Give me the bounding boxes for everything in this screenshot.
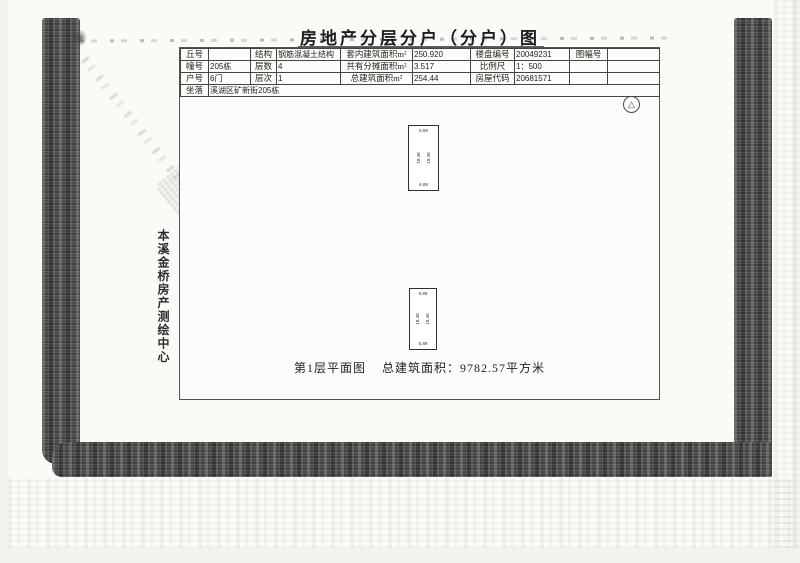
- property-info-table: 丘号 结构 钢筋混凝土结构 套内建筑面积m² 250.920 楼盘编号 2004…: [180, 48, 660, 97]
- field-value: [608, 73, 660, 85]
- field-label: 共有分摊面积m²: [341, 61, 413, 73]
- scan-artifact-strip-right: [734, 18, 772, 477]
- field-label: [570, 73, 608, 85]
- scan-texture-bottom: [8, 478, 792, 548]
- field-label: 图幅号: [570, 49, 608, 61]
- field-label: 总建筑面积m²: [341, 73, 413, 85]
- table-row: 坐落 溪湖区矿新街205栋: [181, 85, 660, 97]
- field-label: [570, 61, 608, 73]
- field-label: 幢号: [181, 61, 209, 73]
- dimension-label: 18.48: [426, 313, 431, 324]
- compass-logo-icon: △: [623, 96, 640, 113]
- plan-sheet: 丘号 结构 钢筋混凝土结构 套内建筑面积m² 250.920 楼盘编号 2004…: [179, 47, 660, 400]
- dimension-label: 6.89: [413, 183, 435, 188]
- dimension-labels-vertical: 18.48 18.48: [415, 311, 431, 326]
- field-value: [209, 49, 251, 61]
- field-label: 比例尺: [471, 61, 515, 73]
- field-label: 户号: [181, 73, 209, 85]
- table-row: 户号 6门 层次 1 总建筑面积m² 254.44 房屋代码 20681571: [181, 73, 660, 85]
- field-label: 丘号: [181, 49, 209, 61]
- field-value: 205栋: [209, 61, 251, 73]
- scanned-document: 房地产分层分户（分户）图 本溪金桥房产测绘中心 丘号 结构 钢筋混凝土结构 套内…: [0, 0, 800, 563]
- field-value: 钢筋混凝土结构: [277, 49, 341, 61]
- dimension-label: 18.48: [426, 152, 431, 163]
- ink-speck: [72, 28, 88, 48]
- floor-caption-name: 第1层平面图: [294, 361, 366, 375]
- scan-texture-right: [774, 0, 800, 548]
- field-value: 1：500: [515, 61, 570, 73]
- table-row: 丘号 结构 钢筋混凝土结构 套内建筑面积m² 250.920 楼盘编号 2004…: [181, 49, 660, 61]
- floor-caption-area: 总建筑面积：9782.57平方米: [382, 361, 545, 375]
- field-label: 层数: [251, 61, 277, 73]
- field-label: 结构: [251, 49, 277, 61]
- field-value: 1: [277, 73, 341, 85]
- scan-artifact-strip-left: [42, 18, 80, 464]
- floor-caption: 第1层平面图总建筑面积：9782.57平方米: [180, 359, 659, 376]
- field-value: 溪湖区矿新街205栋: [209, 85, 660, 97]
- field-label: 房屋代码: [471, 73, 515, 85]
- field-value: 20049231: [515, 49, 570, 61]
- field-value: 250.920: [413, 49, 471, 61]
- dimension-label: 6.89: [413, 292, 433, 297]
- dimension-label: 6.89: [413, 342, 433, 347]
- dimension-labels-vertical: 18.48 18.48: [416, 150, 432, 165]
- field-value: [608, 61, 660, 73]
- unit-outline-upper: 6.89 18.48 18.48 6.89: [408, 125, 439, 191]
- field-value: 20681571: [515, 73, 570, 85]
- field-value: 3.517: [413, 61, 471, 73]
- unit-outline-lower: 6.89 18.48 18.48 6.89: [409, 288, 437, 350]
- field-label: 套内建筑面积m²: [341, 49, 413, 61]
- field-label: 楼盘编号: [471, 49, 515, 61]
- scan-artifact-strip-bottom: [52, 442, 772, 477]
- field-label: 层次: [251, 73, 277, 85]
- table-row: 幢号 205栋 层数 4 共有分摊面积m² 3.517 比例尺 1：500: [181, 61, 660, 73]
- field-label: 坐落: [181, 85, 209, 97]
- dimension-label: 6.89: [413, 129, 435, 134]
- field-value: 6门: [209, 73, 251, 85]
- agency-vertical-label: 本溪金桥房产测绘中心: [155, 229, 172, 364]
- field-value: [608, 49, 660, 61]
- field-value: 4: [277, 61, 341, 73]
- field-value: 254.44: [413, 73, 471, 85]
- dimension-label: 18.48: [416, 152, 421, 163]
- dimension-label: 18.48: [416, 313, 421, 324]
